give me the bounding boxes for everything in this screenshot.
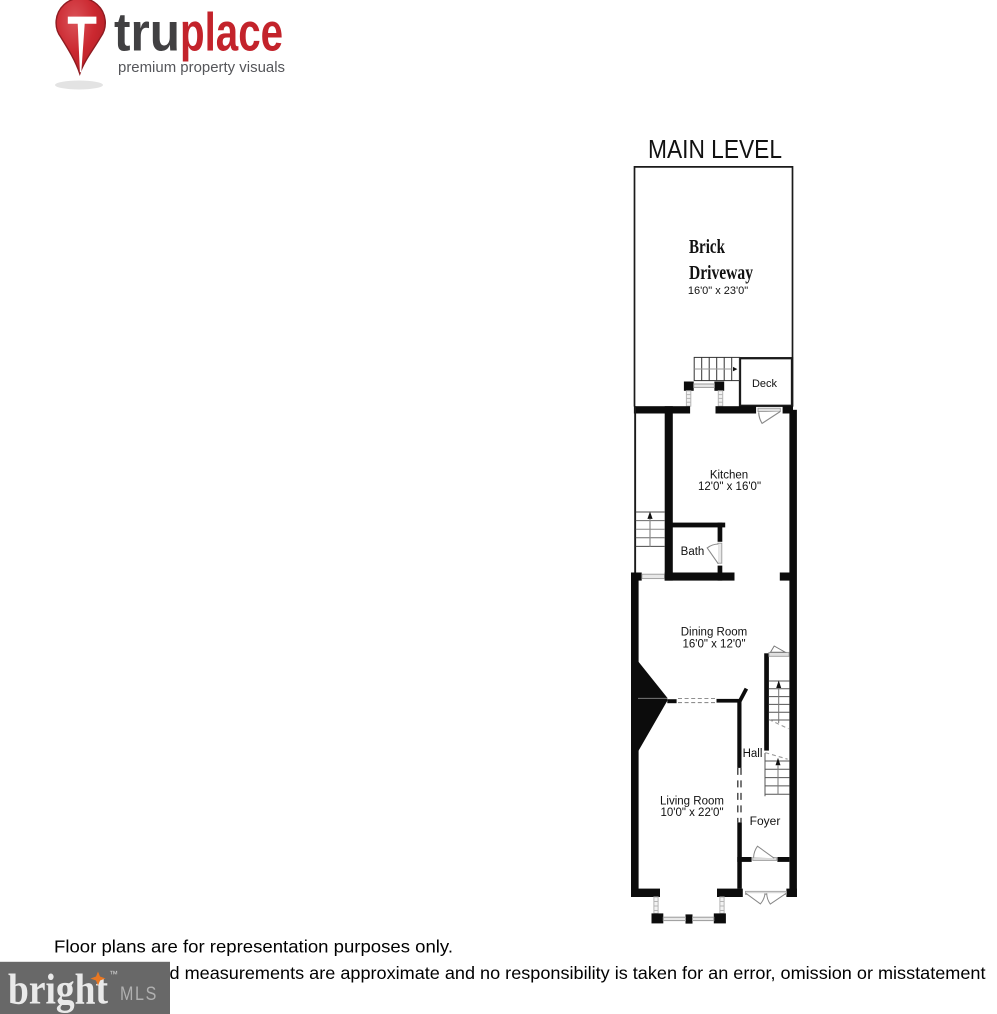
svg-text:Driveway: Driveway: [689, 263, 753, 284]
svg-text:16'0" x 23'0": 16'0" x 23'0": [688, 285, 748, 297]
svg-text:Foyer: Foyer: [750, 814, 781, 828]
svg-text:16'0" x 12'0": 16'0" x 12'0": [682, 639, 745, 651]
svg-text:12'0" x 16'0": 12'0" x 16'0": [698, 481, 761, 493]
svg-text:tru: tru: [114, 3, 180, 63]
svg-text:Hall: Hall: [743, 748, 763, 760]
svg-text:premium property visuals: premium property visuals: [118, 60, 285, 76]
svg-text:Deck: Deck: [752, 378, 778, 390]
svg-text:place: place: [180, 3, 283, 63]
svg-text:Brick: Brick: [689, 237, 725, 258]
svg-text:10'0" x 22'0": 10'0" x 22'0": [660, 807, 723, 819]
svg-text:Dining Room: Dining Room: [681, 627, 747, 639]
svg-text:™: ™: [109, 969, 118, 979]
svg-text:Bath: Bath: [681, 546, 705, 558]
svg-text:Floor plans are for representa: Floor plans are for representation purpo…: [54, 937, 453, 957]
svg-text:d measurements are approximate: d measurements are approximate and no re…: [170, 963, 986, 983]
svg-text:Living Room: Living Room: [660, 796, 724, 808]
svg-text:Kitchen: Kitchen: [710, 470, 748, 482]
svg-text:bright: bright: [8, 967, 109, 1014]
svg-text:MAIN LEVEL: MAIN LEVEL: [648, 134, 782, 164]
svg-text:MLS: MLS: [120, 983, 158, 1005]
